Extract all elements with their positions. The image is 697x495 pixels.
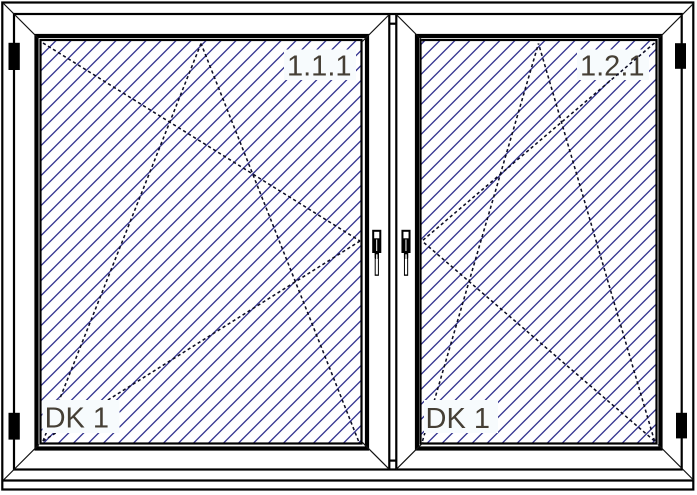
svg-text:1.1.1: 1.1.1 bbox=[287, 51, 352, 83]
svg-text:DK 1: DK 1 bbox=[45, 403, 109, 435]
svg-text:DK 1: DK 1 bbox=[426, 403, 490, 435]
svg-text:1.2.1: 1.2.1 bbox=[580, 51, 645, 83]
